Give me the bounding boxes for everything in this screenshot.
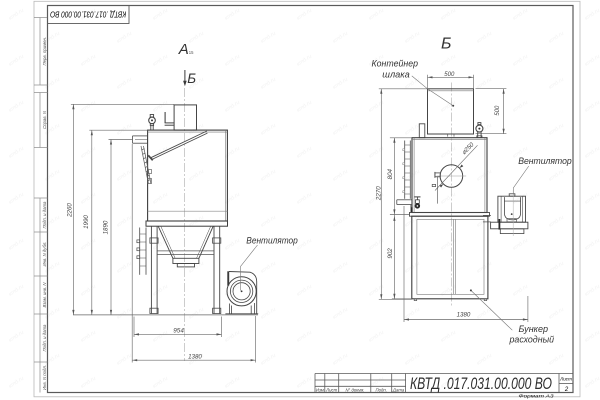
svg-text:954: 954 — [173, 327, 184, 334]
svg-text:Взам. инв. N: Взам. инв. N — [42, 282, 47, 308]
svg-text:Изм: Изм — [316, 387, 324, 392]
svg-text:804: 804 — [387, 168, 394, 179]
svg-text:А: А — [178, 41, 189, 58]
svg-text:500: 500 — [444, 72, 455, 78]
svg-text:расходный: расходный — [509, 335, 554, 345]
svg-text:2260: 2260 — [67, 203, 74, 218]
svg-text:Вентилятор: Вентилятор — [518, 155, 572, 166]
svg-text:Б: Б — [441, 36, 451, 53]
svg-text:N° докум.: N° докум. — [345, 387, 364, 392]
svg-text:Подп.: Подп. — [375, 387, 386, 392]
svg-text:1990: 1990 — [83, 215, 90, 229]
svg-text:Формат А3: Формат А3 — [519, 394, 554, 400]
svg-text:500: 500 — [495, 105, 501, 116]
svg-text:Подп. и дата: Подп. и дата — [42, 201, 47, 229]
svg-text:Контейнер: Контейнер — [372, 59, 419, 69]
svg-text:1890: 1890 — [103, 220, 110, 234]
svg-text:Справ. N: Справ. N — [42, 110, 47, 129]
svg-text:Лист: Лист — [325, 387, 337, 392]
svg-text:902: 902 — [387, 248, 394, 259]
svg-text:2: 2 — [564, 387, 569, 393]
svg-text:Инв. N дубл.: Инв. N дубл. — [42, 242, 47, 267]
svg-text:Инв. N подл.: Инв. N подл. — [42, 365, 47, 390]
svg-text:Вентилятор: Вентилятор — [246, 235, 297, 245]
svg-text:2270: 2270 — [375, 186, 382, 201]
svg-text:Дата: Дата — [392, 387, 405, 392]
svg-text:Подп. и дата: Подп. и дата — [42, 324, 47, 352]
svg-text:шлака: шлака — [382, 69, 410, 79]
svg-text:КВТД .017.031.00.000 ВО: КВТД .017.031.00.000 ВО — [410, 375, 552, 393]
svg-text:15: 15 — [189, 50, 194, 55]
svg-text:Бункер: Бункер — [519, 324, 549, 334]
svg-text:1380: 1380 — [457, 312, 471, 319]
svg-text:Перв. примен.: Перв. примен. — [42, 37, 47, 66]
svg-text:1380: 1380 — [188, 353, 202, 360]
svg-text:Лист: Лист — [559, 377, 572, 382]
svg-text:КВТД .017.031.00.000 ВО: КВТД .017.031.00.000 ВО — [50, 10, 126, 20]
svg-text:Б: Б — [187, 71, 196, 86]
